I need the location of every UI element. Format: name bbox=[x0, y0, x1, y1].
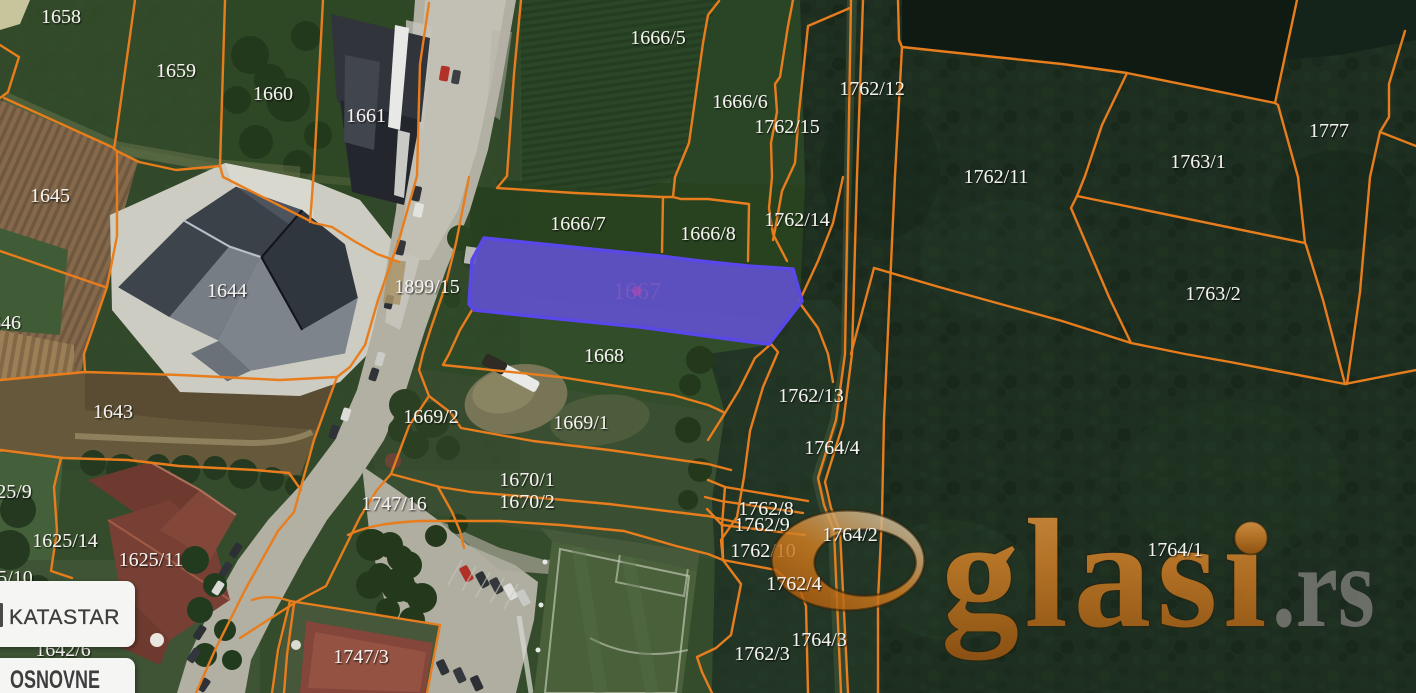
svg-text:1763/2: 1763/2 bbox=[1185, 283, 1241, 305]
svg-text:1747/16: 1747/16 bbox=[361, 493, 427, 515]
svg-text:1762/12: 1762/12 bbox=[839, 78, 905, 100]
svg-text:1764/3: 1764/3 bbox=[791, 629, 847, 651]
svg-text:1777: 1777 bbox=[1309, 120, 1349, 142]
svg-text:1670/1: 1670/1 bbox=[499, 469, 555, 491]
svg-text:1762/9: 1762/9 bbox=[734, 514, 790, 536]
svg-text:1762/4: 1762/4 bbox=[766, 573, 822, 595]
svg-text:1625/9: 1625/9 bbox=[0, 481, 32, 503]
svg-text:1747/3: 1747/3 bbox=[333, 646, 389, 668]
svg-text:1661: 1661 bbox=[346, 105, 386, 127]
svg-text:1644: 1644 bbox=[207, 280, 247, 302]
svg-text:KATASTAR: KATASTAR bbox=[9, 606, 120, 629]
svg-text:1666/7: 1666/7 bbox=[550, 213, 606, 235]
svg-text:1658: 1658 bbox=[41, 6, 81, 28]
svg-text:1762/13: 1762/13 bbox=[778, 385, 844, 407]
svg-text:1666/5: 1666/5 bbox=[630, 27, 686, 49]
svg-text:1763/1: 1763/1 bbox=[1170, 151, 1226, 173]
svg-text:1764/2: 1764/2 bbox=[822, 524, 878, 546]
svg-text:1659: 1659 bbox=[156, 60, 196, 82]
svg-text:glası: glası bbox=[941, 487, 1272, 661]
svg-text:1643: 1643 bbox=[93, 401, 133, 423]
svg-text:1668: 1668 bbox=[584, 345, 624, 367]
svg-text:1762/3: 1762/3 bbox=[734, 643, 790, 665]
svg-text:1625/14: 1625/14 bbox=[32, 530, 98, 552]
svg-text:1646: 1646 bbox=[0, 312, 21, 334]
svg-text:1669/2: 1669/2 bbox=[403, 406, 459, 428]
svg-text:1762/11: 1762/11 bbox=[964, 166, 1029, 188]
svg-text:1645: 1645 bbox=[30, 185, 70, 207]
svg-text:1764/4: 1764/4 bbox=[804, 437, 860, 459]
svg-text:1764/1: 1764/1 bbox=[1147, 539, 1203, 561]
svg-text:.rs: .rs bbox=[1272, 523, 1375, 653]
svg-text:1660: 1660 bbox=[253, 83, 293, 105]
svg-text:1899/15: 1899/15 bbox=[394, 276, 460, 298]
svg-text:1625/11: 1625/11 bbox=[119, 549, 184, 571]
svg-text:1670/2: 1670/2 bbox=[499, 491, 555, 513]
svg-text:1762/14: 1762/14 bbox=[764, 209, 830, 231]
svg-text:1669/1: 1669/1 bbox=[553, 412, 609, 434]
svg-text:1666/6: 1666/6 bbox=[712, 91, 768, 113]
svg-text:OSNOVNE: OSNOVNE bbox=[10, 665, 100, 693]
svg-text:1666/8: 1666/8 bbox=[680, 223, 736, 245]
svg-text:1762/15: 1762/15 bbox=[754, 116, 820, 138]
